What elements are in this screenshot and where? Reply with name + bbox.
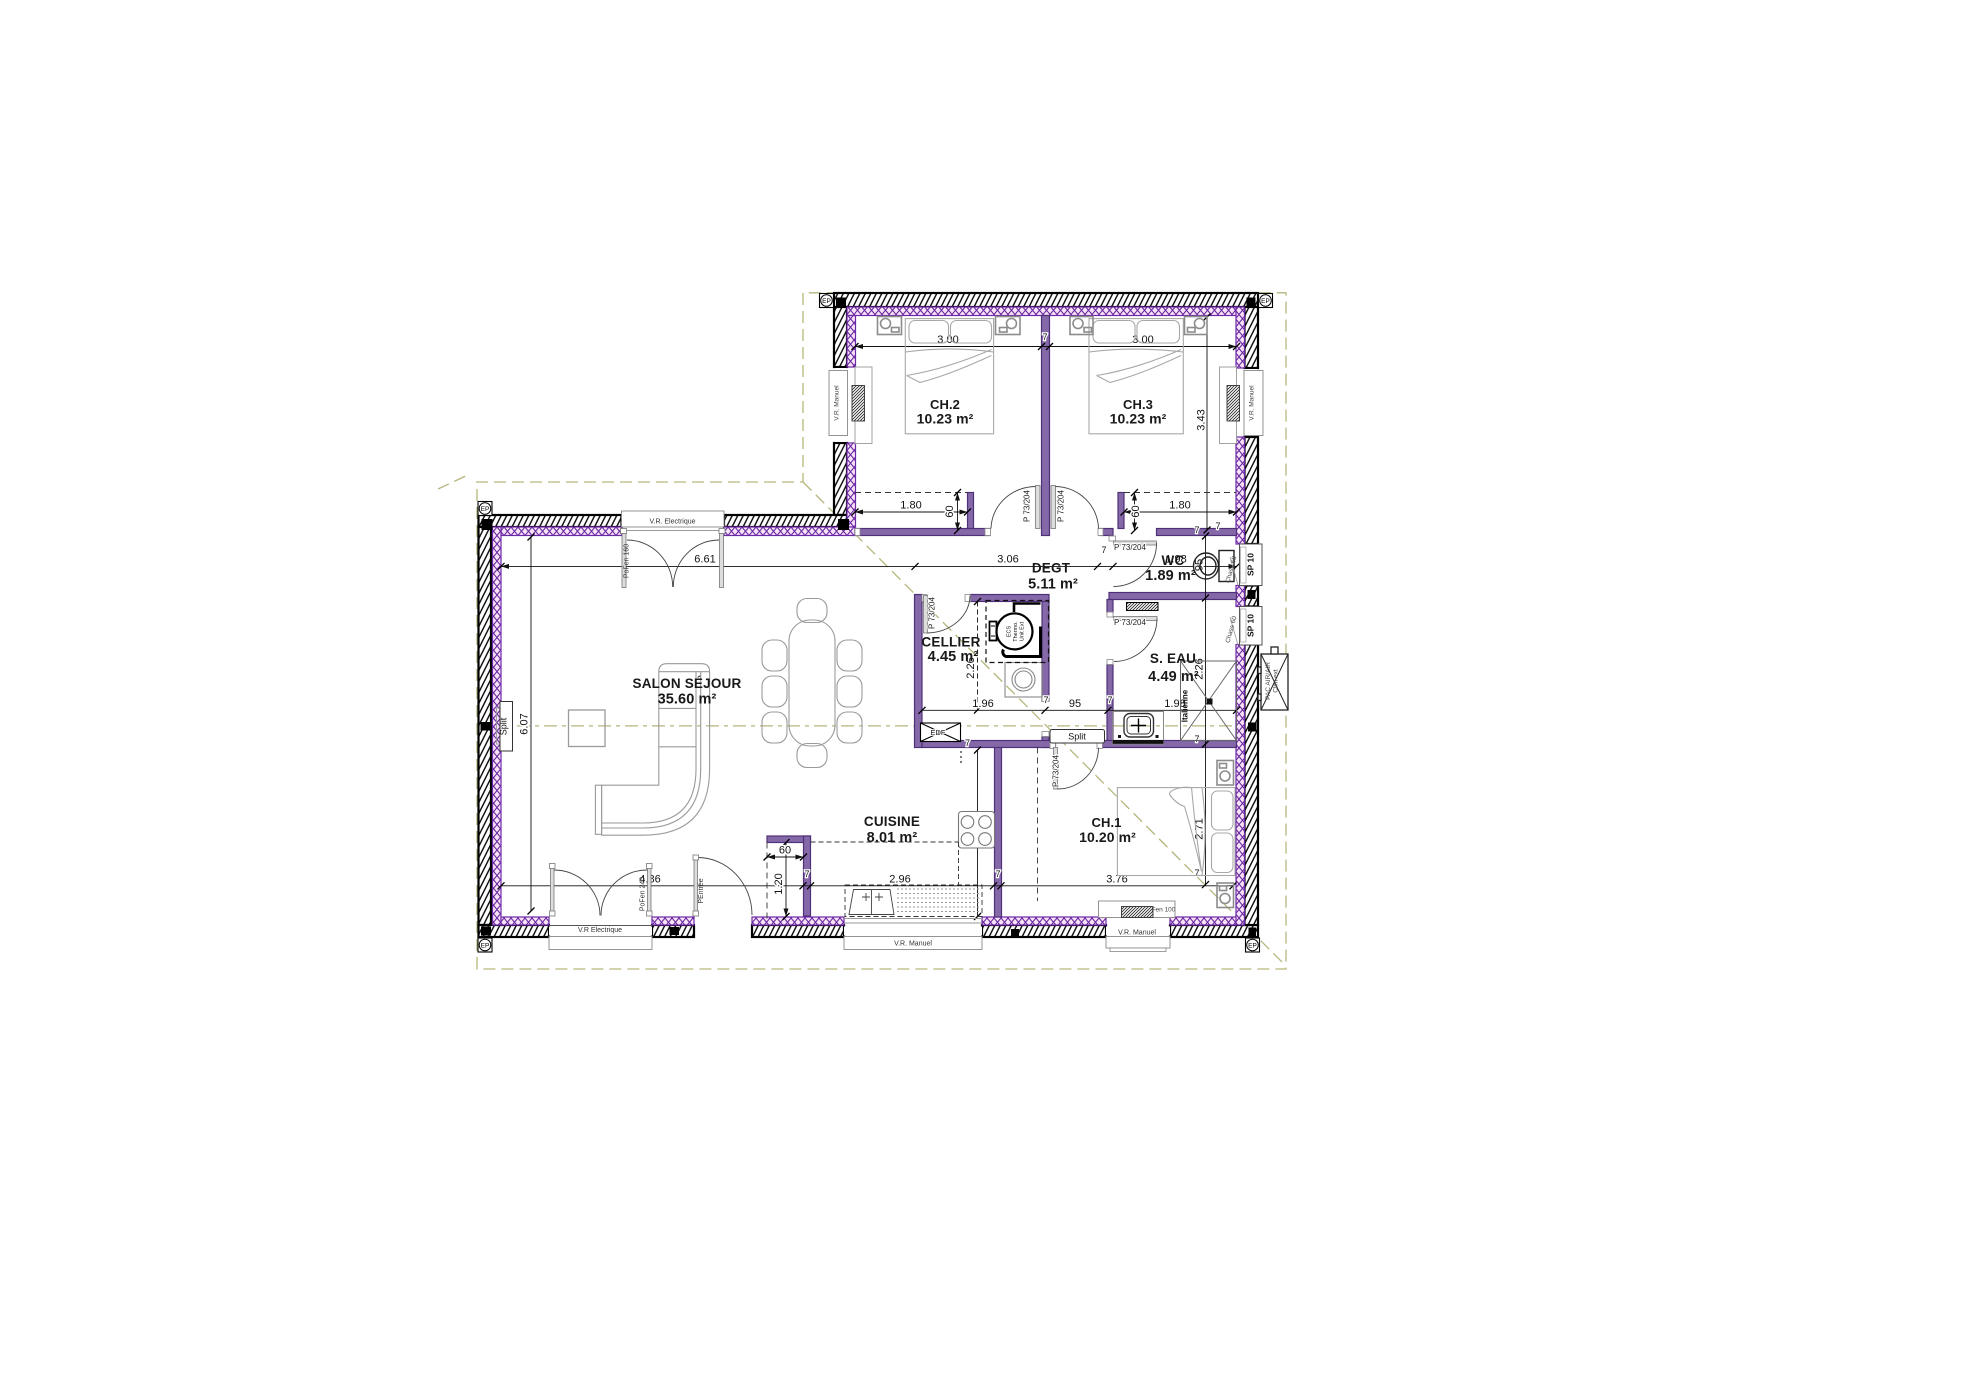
svg-text:2.96: 2.96 (889, 874, 910, 886)
svg-text:1.80: 1.80 (900, 500, 921, 512)
svg-text:5.11 m²: 5.11 m² (1028, 577, 1078, 593)
svg-text:7: 7 (1194, 868, 1199, 878)
svg-text:7: 7 (1194, 525, 1199, 535)
svg-text:EP: EP (1248, 943, 1257, 950)
svg-text:PAC AIR/AIR: PAC AIR/AIR (1265, 662, 1272, 700)
svg-text:V.R. Manuel: V.R. Manuel (894, 941, 932, 948)
svg-text:V.R. Electrique: V.R. Electrique (649, 519, 695, 526)
svg-text:95: 95 (1069, 698, 1081, 710)
svg-text:PEntrée: PEntrée (698, 878, 705, 903)
svg-text:4.49 m²: 4.49 m² (1148, 669, 1199, 685)
svg-text:7: 7 (1043, 695, 1048, 705)
svg-text:6.07: 6.07 (519, 713, 531, 734)
svg-text:V.R. Manuel: V.R. Manuel (834, 385, 841, 421)
svg-text:SALON SÉJOUR: SALON SÉJOUR (633, 676, 742, 691)
svg-text:V.R Electrique: V.R Electrique (578, 927, 622, 934)
svg-text:10.23 m²: 10.23 m² (917, 411, 974, 427)
svg-text:4.45 m²: 4.45 m² (928, 649, 979, 665)
svg-text:EP: EP (822, 298, 831, 305)
svg-text:7: 7 (1042, 332, 1047, 342)
svg-text:7: 7 (1215, 521, 1220, 531)
svg-text:7: 7 (995, 869, 1000, 879)
svg-text:7: 7 (1107, 695, 1112, 705)
svg-text:PoFen 160: PoFen 160 (624, 544, 631, 578)
svg-text:SP 10: SP 10 (1246, 614, 1256, 637)
svg-text:1.96: 1.96 (972, 698, 993, 710)
svg-text:8.01 m²: 8.01 m² (867, 830, 918, 846)
svg-text:Fen 100: Fen 100 (1152, 907, 1176, 914)
svg-text:Thermo.: Thermo. (1013, 621, 1019, 642)
svg-text:3.43: 3.43 (1196, 409, 1208, 430)
svg-text:3.06: 3.06 (997, 554, 1018, 566)
svg-text:P 73/204: P 73/204 (1057, 490, 1066, 522)
svg-text:1.89 m²: 1.89 m² (1145, 568, 1196, 584)
svg-text:P 73/204: P 73/204 (1023, 490, 1032, 522)
svg-text:EP: EP (1261, 298, 1270, 305)
svg-text:EP: EP (481, 943, 490, 950)
svg-text:S. EAU: S. EAU (1150, 651, 1196, 666)
svg-text:1.20: 1.20 (773, 873, 785, 894)
svg-text:SP 10: SP 10 (1246, 553, 1256, 576)
svg-text:10.20 m²: 10.20 m² (1079, 829, 1136, 845)
svg-text:CUISINE: CUISINE (864, 814, 920, 829)
svg-text:CH.1: CH.1 (1091, 815, 1121, 830)
svg-text:Unit Ext: Unit Ext (1020, 621, 1026, 641)
svg-text:7: 7 (804, 869, 809, 879)
svg-text:Italienne: Italienne (1181, 689, 1190, 722)
svg-text:V.R. Manuel: V.R. Manuel (1118, 930, 1156, 937)
svg-text:10.23 m²: 10.23 m² (1110, 411, 1167, 427)
svg-text:7: 7 (965, 738, 970, 748)
svg-text:7: 7 (1101, 545, 1106, 555)
svg-text:60: 60 (779, 845, 791, 857)
svg-text:P 73/204: P 73/204 (1114, 543, 1146, 552)
svg-text:PoFen 240: PoFen 240 (640, 877, 647, 911)
svg-text:CELLIER: CELLIER (921, 635, 980, 650)
svg-text:V.R. Manuel: V.R. Manuel (1249, 385, 1256, 421)
svg-text:1.80: 1.80 (1169, 500, 1190, 512)
svg-text:60: 60 (1130, 505, 1142, 517)
svg-text:WC: WC (1162, 553, 1185, 568)
svg-text:EDF: EDF (931, 728, 946, 737)
svg-text:35.60 m²: 35.60 m² (658, 692, 717, 708)
svg-text:DEGT: DEGT (1032, 561, 1071, 576)
svg-text:Clim ext: Clim ext (1273, 669, 1280, 693)
svg-text:P 73/204: P 73/204 (1052, 755, 1061, 787)
svg-text:7: 7 (1194, 734, 1199, 744)
svg-text:60: 60 (944, 505, 956, 517)
svg-text:Split: Split (499, 717, 509, 735)
svg-text:EP: EP (481, 506, 490, 513)
svg-text:ECS: ECS (1007, 626, 1013, 638)
svg-text:P 73/204: P 73/204 (928, 597, 937, 629)
svg-text:Split: Split (1068, 732, 1086, 742)
svg-text:6.61: 6.61 (694, 554, 715, 566)
svg-text:P 73/204: P 73/204 (1114, 618, 1146, 627)
